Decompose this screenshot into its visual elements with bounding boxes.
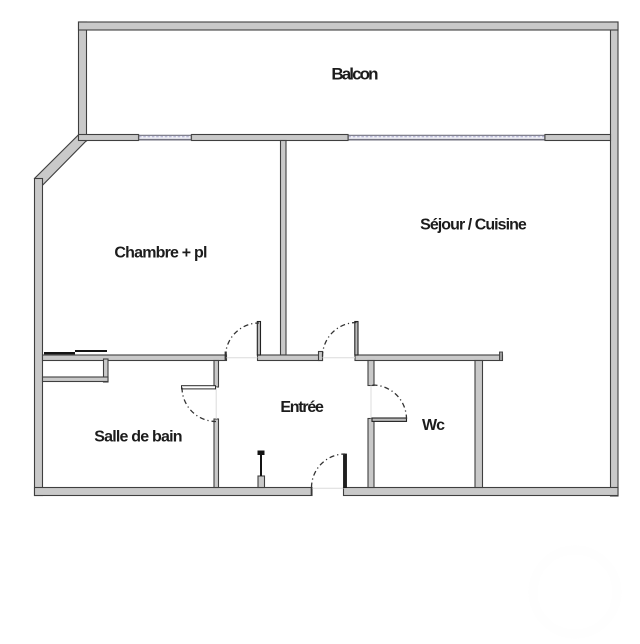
svg-text:Séjour / Cuisine: Séjour / Cuisine [420, 217, 527, 234]
svg-text:Entrée: Entrée [280, 399, 324, 416]
svg-text:Salle de bain: Salle de bain [94, 429, 181, 446]
svg-text:Wc: Wc [422, 417, 445, 434]
svg-text:Balcon: Balcon [331, 65, 378, 84]
svg-text:Chambre + pl: Chambre + pl [114, 245, 207, 262]
